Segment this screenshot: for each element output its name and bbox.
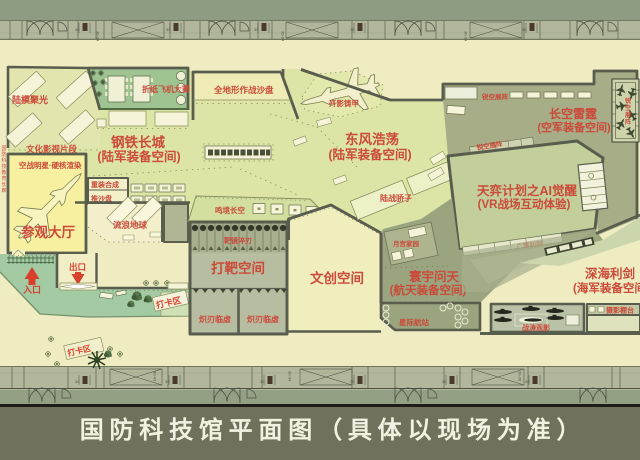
svg-text:(VR战场互动体验): (VR战场互动体验) xyxy=(478,197,571,211)
svg-text:空战明星·硬核渲染: 空战明星·硬核渲染 xyxy=(19,160,82,170)
svg-text:30-34: 30-34 xyxy=(281,31,286,42)
svg-text:东风浩荡: 东风浩荡 xyxy=(345,131,399,147)
svg-text:歼影铸甲: 歼影铸甲 xyxy=(328,98,359,108)
svg-text:炽刃临虚: 炽刃临虚 xyxy=(247,314,279,324)
svg-text:文创空间: 文创空间 xyxy=(310,270,364,286)
svg-text:陆战骄子: 陆战骄子 xyxy=(380,193,412,203)
svg-text:(陆军装备空间): (陆军装备空间) xyxy=(328,147,411,162)
svg-text:(空军装备空间): (空军装备空间) xyxy=(537,120,611,134)
svg-text:流浪地球: 流浪地球 xyxy=(113,220,148,230)
svg-text:阵: 阵 xyxy=(625,118,631,126)
svg-text:炽刃临虚: 炽刃临虚 xyxy=(199,314,231,324)
svg-text:月宫家园: 月宫家园 xyxy=(392,239,420,248)
svg-text:30-34: 30-34 xyxy=(288,371,293,382)
svg-text:寰宇问天: 寰宇问天 xyxy=(408,269,460,284)
svg-text:长: 长 xyxy=(2,181,7,188)
svg-text:国防科技馆平面图（具体以现场为准）: 国防科技馆平面图（具体以现场为准） xyxy=(80,416,587,444)
svg-text:陆模聚光: 陆模聚光 xyxy=(12,94,48,105)
svg-text:全地形作战沙盘: 全地形作战沙盘 xyxy=(213,85,274,95)
svg-text:天弈计划之AI觉醒: 天弈计划之AI觉醒 xyxy=(477,183,578,198)
svg-text:(海军装备空间): (海军装备空间) xyxy=(573,281,640,295)
svg-text:星际航站: 星际航站 xyxy=(399,317,429,327)
svg-text:教: 教 xyxy=(2,169,7,176)
svg-text:战涛观影: 战涛观影 xyxy=(522,323,550,332)
svg-text:重装合成: 重装合成 xyxy=(91,180,119,189)
svg-text:30-34: 30-34 xyxy=(464,31,469,42)
svg-text:入口: 入口 xyxy=(22,285,41,295)
svg-text:30-43: 30-43 xyxy=(153,371,158,382)
svg-text:长空雷霆: 长空雷霆 xyxy=(549,106,598,121)
svg-text:打靶空间: 打靶空间 xyxy=(211,260,265,276)
svg-text:防: 防 xyxy=(2,151,7,158)
svg-text:30-26: 30-26 xyxy=(518,371,523,382)
svg-text:深海利剑: 深海利剑 xyxy=(585,266,635,281)
svg-text:靶镜淬刃: 靶镜淬刃 xyxy=(224,236,252,245)
svg-text:出口: 出口 xyxy=(69,262,86,272)
svg-text:锐空展阵: 锐空展阵 xyxy=(482,92,509,101)
svg-text:科: 科 xyxy=(2,157,7,164)
svg-text:摄影棚台: 摄影棚台 xyxy=(606,306,634,315)
svg-text:钢铁长城: 钢铁长城 xyxy=(111,134,165,150)
svg-text:(陆军装备空间): (陆军装备空间) xyxy=(97,149,180,164)
svg-text:折纸飞机大赛: 折纸飞机大赛 xyxy=(142,84,191,94)
svg-text:参观大厅: 参观大厅 xyxy=(21,224,75,240)
svg-text:育: 育 xyxy=(2,175,7,182)
svg-text:锐: 锐 xyxy=(625,97,631,105)
svg-text:技: 技 xyxy=(2,163,7,170)
svg-text:(航天装备空间): (航天装备空间) xyxy=(390,283,467,297)
svg-text:30-34: 30-34 xyxy=(96,31,101,42)
svg-text:展: 展 xyxy=(625,111,631,119)
svg-text:鸣境长空: 鸣境长空 xyxy=(215,205,245,215)
svg-text:廊: 廊 xyxy=(2,187,7,194)
svg-text:空: 空 xyxy=(625,104,631,112)
svg-text:文化影视片段: 文化影视片段 xyxy=(26,144,78,154)
